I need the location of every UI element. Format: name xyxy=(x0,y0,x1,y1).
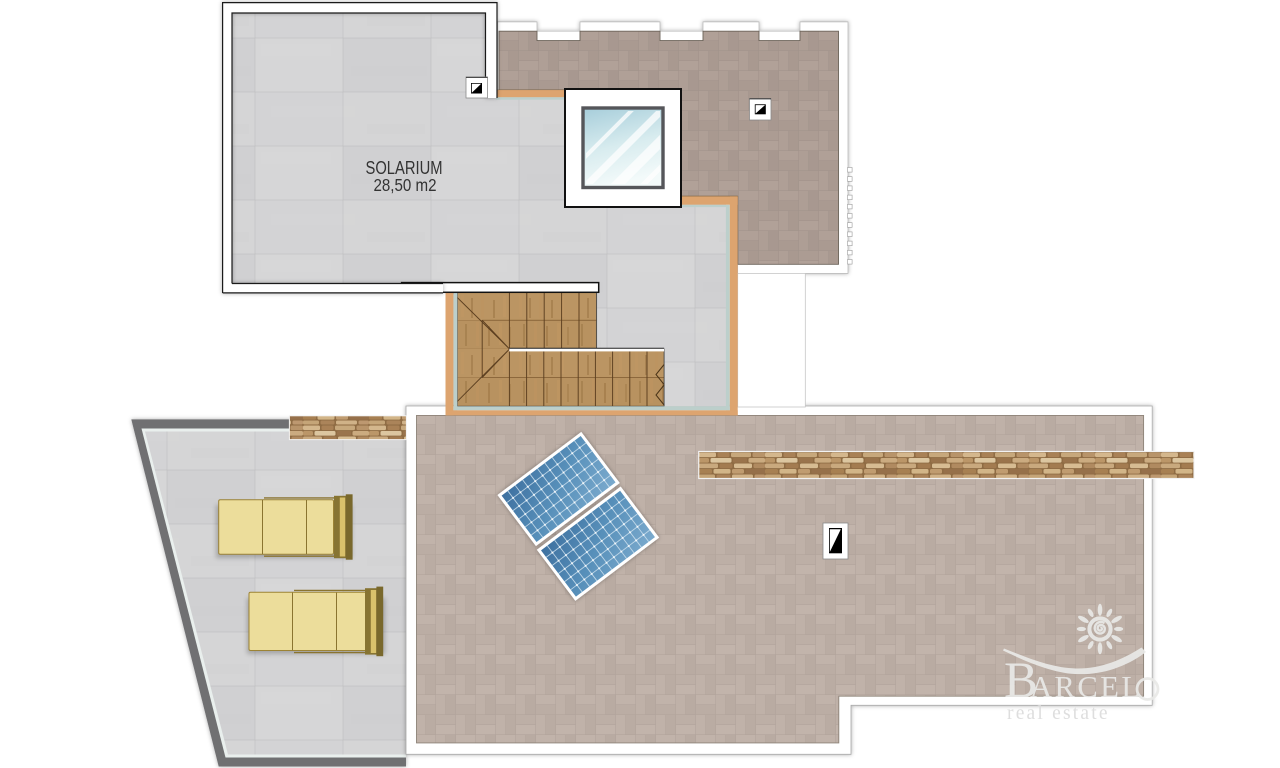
svg-text:real estate: real estate xyxy=(1007,703,1110,724)
svg-text:ARCEL: ARCEL xyxy=(1030,670,1142,704)
svg-text:28,50 m2: 28,50 m2 xyxy=(374,175,437,195)
